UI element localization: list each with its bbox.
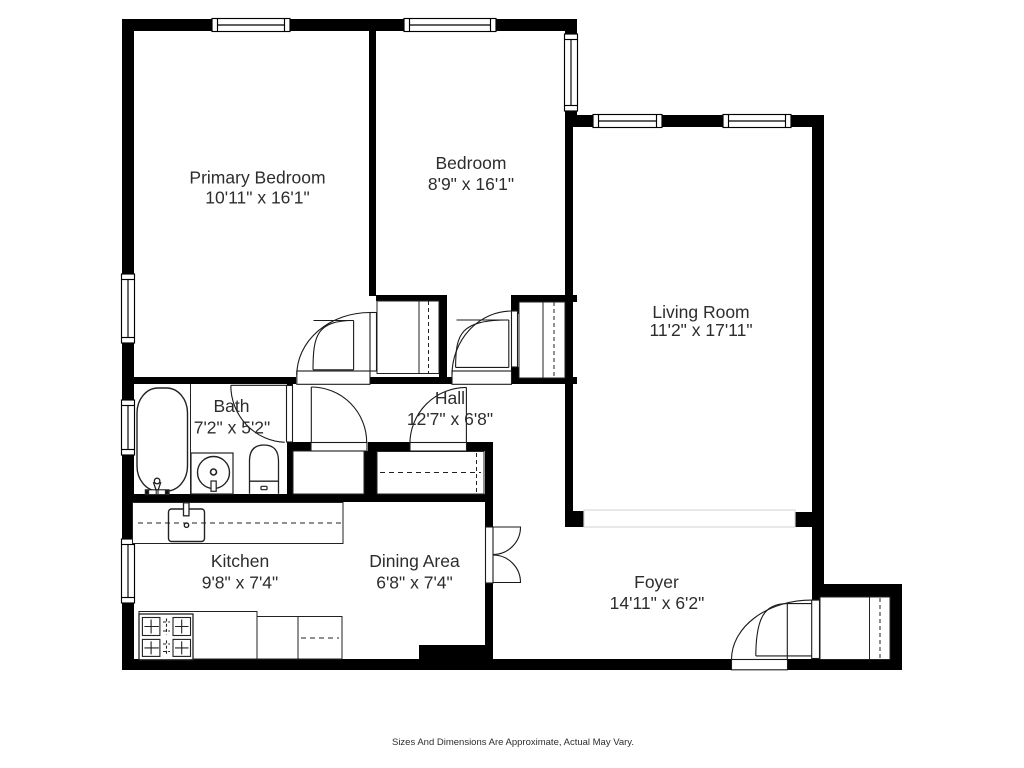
svg-text:9'8" x 7'4": 9'8" x 7'4" [202, 573, 279, 593]
svg-text:11'2" x 17'11": 11'2" x 17'11" [649, 320, 752, 340]
svg-text:12'7" x 6'8": 12'7" x 6'8" [407, 409, 493, 429]
svg-text:Hall: Hall [435, 388, 465, 408]
svg-text:Living Room: Living Room [652, 302, 749, 322]
svg-text:Bedroom: Bedroom [435, 153, 506, 173]
svg-text:Foyer: Foyer [634, 572, 679, 592]
svg-text:10'11" x 16'1": 10'11" x 16'1" [205, 188, 309, 208]
svg-text:Bath: Bath [214, 396, 250, 416]
svg-text:Primary Bedroom: Primary Bedroom [189, 168, 325, 188]
svg-text:7'2" x 5'2": 7'2" x 5'2" [194, 418, 271, 438]
svg-text:Kitchen: Kitchen [211, 551, 269, 571]
svg-text:6'8" x 7'4": 6'8" x 7'4" [376, 573, 453, 593]
svg-text:14'11" x 6'2": 14'11" x 6'2" [610, 593, 705, 613]
svg-text:8'9" x 16'1": 8'9" x 16'1" [428, 174, 514, 194]
svg-text:Sizes And Dimensions Are Appro: Sizes And Dimensions Are Approximate, Ac… [392, 737, 634, 748]
svg-text:Dining Area: Dining Area [369, 551, 460, 571]
